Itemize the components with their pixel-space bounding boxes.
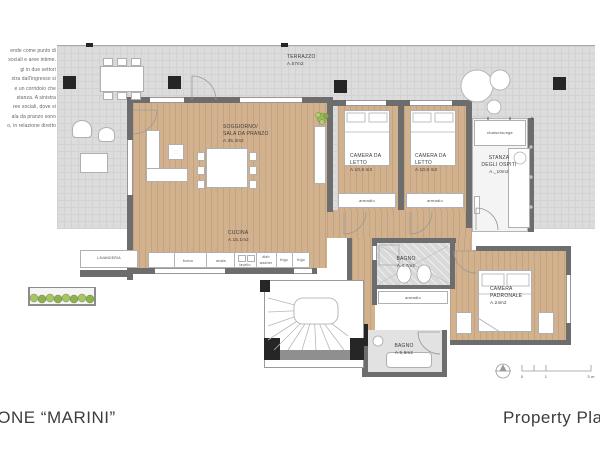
- frigo-label: frigo: [276, 258, 292, 263]
- room-name: SOGGIORNO/: [223, 124, 269, 131]
- scale-one-label: 1: [539, 374, 553, 379]
- room-area: A.24m2: [490, 300, 522, 307]
- lavanderia-label: LAVANDERIA: [80, 256, 138, 261]
- door-arc: [476, 208, 498, 230]
- bagno1-label: BAGNO A.4,7m2: [388, 256, 424, 270]
- sheet-title: Property Pla: [503, 408, 600, 428]
- scale-bar: [522, 365, 591, 371]
- plan-detail-overlay: [0, 0, 600, 460]
- room-area: A.57m2: [287, 61, 316, 68]
- floor-plan-canvas: ende come punto di sociali e aree intime…: [0, 0, 600, 460]
- dishwasher-label: washer: [256, 261, 276, 266]
- room-area: A.10,6 m2: [350, 167, 381, 174]
- north-compass-icon: [495, 364, 511, 378]
- terrace-bushes: [461, 70, 510, 114]
- room-name: BAGNO: [388, 256, 424, 263]
- lavello-label: lavello: [234, 263, 256, 268]
- living-room-plant: [316, 113, 329, 125]
- room-area: A.35,3m2: [223, 138, 269, 145]
- room-area: A.4,7m2: [388, 263, 424, 270]
- room-area: A.5,5m2: [386, 350, 422, 357]
- door-arc: [410, 212, 432, 234]
- dishwasher-label: dish: [256, 255, 276, 260]
- room-name: DEGLI OSPITI: [472, 162, 526, 169]
- scale-three-label: 3 m: [582, 374, 600, 379]
- project-title: IONE “MARINI”: [0, 408, 116, 428]
- camera2-label: CAMERA DA LETTO A.10,6 m2: [415, 153, 446, 173]
- bagno2-label: BAGNO A.5,5m2: [386, 343, 422, 357]
- armadio-label: armadio: [406, 198, 464, 203]
- room-area: A.15,1m2: [228, 237, 249, 244]
- cucina-label: CUCINA A.15,1m2: [228, 230, 249, 244]
- room-name: CAMERA: [490, 286, 522, 293]
- terrazzo-label: TERRAZZO A.57m2: [287, 54, 316, 68]
- stanza-ospiti-label: STANZA DEGLI OSPITI A._10m2: [472, 155, 526, 175]
- stairs: [268, 298, 348, 350]
- bagno2-fixtures: [373, 336, 383, 346]
- room-name: CAMERA DA: [350, 153, 381, 160]
- room-area: A._10m2: [472, 169, 526, 176]
- room-name: STANZA: [472, 155, 526, 162]
- room-name: LETTO: [415, 160, 446, 167]
- camera1-label: CAMERA DA LETTO A.10,6 m2: [350, 153, 381, 173]
- armadio-label: armadio: [338, 198, 396, 203]
- room-name: BAGNO: [386, 343, 422, 350]
- room-name: CUCINA: [228, 230, 249, 237]
- scale-zero-label: 0: [515, 374, 529, 379]
- room-name: PADRONALE: [490, 293, 522, 300]
- door-arc: [454, 251, 476, 273]
- room-name: TERRAZZO: [287, 54, 316, 61]
- planter-plants: [30, 294, 94, 303]
- soggiorno-label: SOGGIORNO/ SALA DA PRANZO A.35,3m2: [223, 124, 269, 144]
- room-name: SALA DA PRANZO: [223, 131, 269, 138]
- camera-padronale-label: CAMERA PADRONALE A.24m2: [490, 286, 522, 306]
- wall-tick-marks: [529, 145, 533, 209]
- door-arc: [192, 76, 216, 100]
- frigo-label: frigo: [293, 258, 309, 263]
- chaiselounge-ticks: [488, 117, 532, 120]
- armadio-label: armadio: [378, 295, 448, 300]
- chaiselounge-label: chaiselounge: [474, 130, 526, 135]
- door-arc: [133, 110, 157, 134]
- door-arc: [344, 212, 366, 234]
- room-name: LETTO: [350, 160, 381, 167]
- room-area: A.10,6 m2: [415, 167, 446, 174]
- room-name: CAMERA DA: [415, 153, 446, 160]
- stufa-label: stufa: [210, 258, 232, 263]
- forno-label: forno: [176, 258, 200, 263]
